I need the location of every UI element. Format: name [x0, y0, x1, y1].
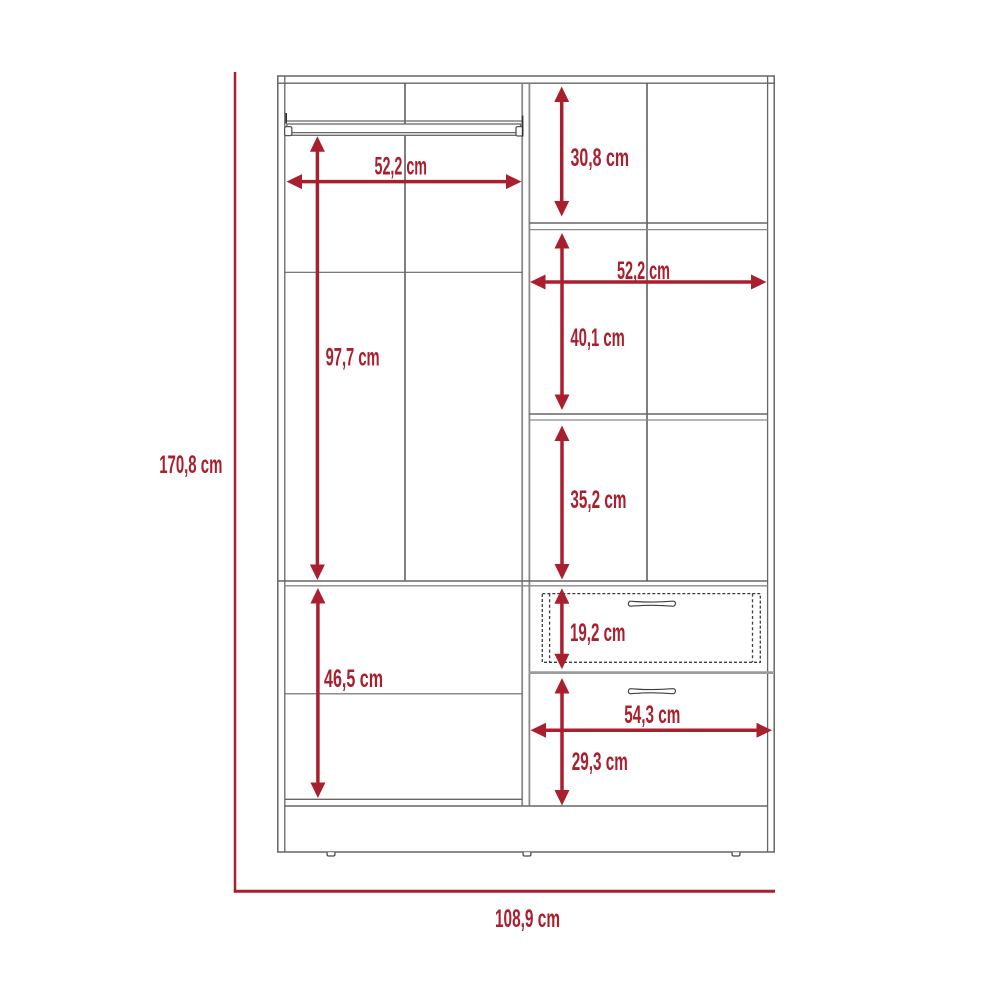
svg-text:52,2 cm: 52,2 cm [617, 258, 670, 285]
svg-text:35,2 cm: 35,2 cm [570, 487, 626, 514]
svg-text:29,3 cm: 29,3 cm [572, 749, 628, 776]
svg-text:46,5 cm: 46,5 cm [324, 666, 383, 693]
svg-text:97,7 cm: 97,7 cm [326, 345, 380, 372]
svg-text:108,9 cm: 108,9 cm [495, 906, 560, 933]
svg-text:19,2 cm: 19,2 cm [570, 620, 625, 647]
svg-text:40,1 cm: 40,1 cm [570, 325, 624, 352]
svg-text:30,8 cm: 30,8 cm [571, 145, 630, 172]
svg-text:170,8 cm: 170,8 cm [159, 452, 222, 479]
svg-text:52,2 cm: 52,2 cm [375, 154, 428, 181]
svg-text:54,3 cm: 54,3 cm [624, 702, 680, 729]
